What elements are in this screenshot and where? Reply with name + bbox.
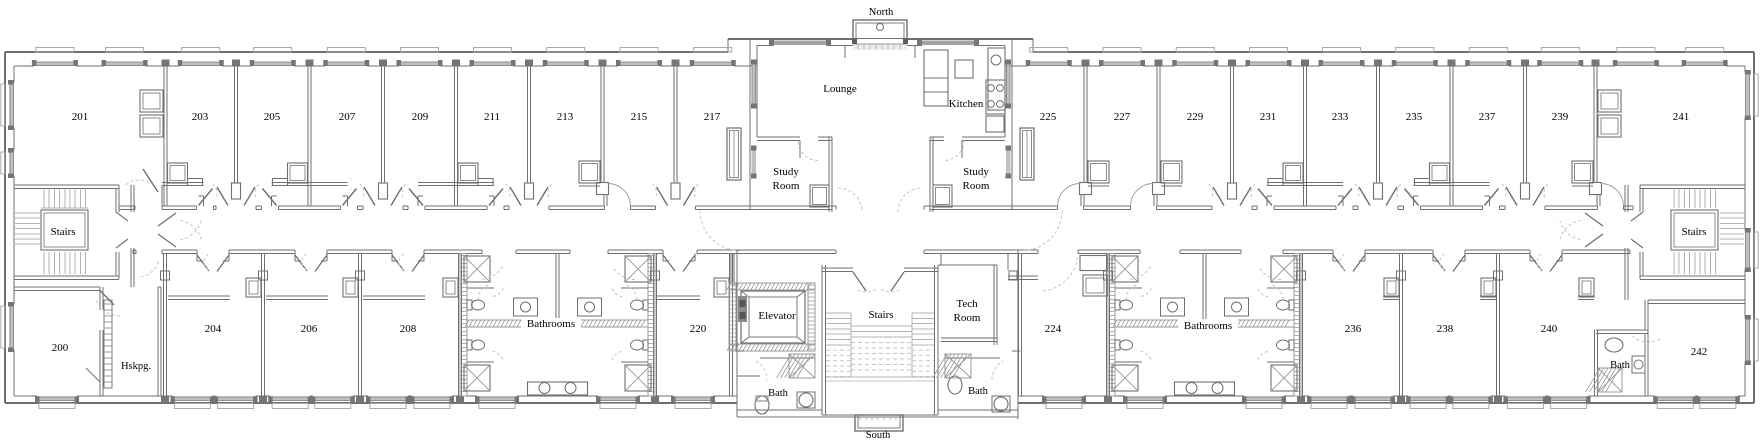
svg-text:240: 240: [1541, 323, 1558, 335]
svg-text:Bath: Bath: [968, 386, 989, 397]
svg-text:213: 213: [557, 111, 574, 123]
svg-text:Bathrooms: Bathrooms: [527, 318, 575, 330]
svg-text:Stairs: Stairs: [868, 309, 893, 321]
svg-text:Study: Study: [963, 166, 989, 178]
svg-text:Bath: Bath: [1610, 360, 1631, 371]
svg-text:200: 200: [52, 342, 69, 354]
svg-text:231: 231: [1260, 111, 1277, 123]
svg-text:209: 209: [412, 111, 429, 123]
svg-text:220: 220: [690, 323, 707, 335]
svg-text:229: 229: [1187, 111, 1204, 123]
svg-text:Study: Study: [773, 166, 799, 178]
svg-text:239: 239: [1552, 111, 1569, 123]
svg-text:211: 211: [484, 111, 500, 123]
svg-text:Room: Room: [773, 180, 800, 192]
svg-text:236: 236: [1345, 323, 1362, 335]
svg-text:Room: Room: [954, 312, 981, 324]
svg-text:225: 225: [1040, 111, 1057, 123]
svg-text:Stairs: Stairs: [1681, 226, 1706, 238]
svg-text:204: 204: [205, 323, 222, 335]
svg-text:206: 206: [301, 323, 318, 335]
svg-text:Elevator: Elevator: [758, 310, 796, 322]
svg-text:208: 208: [400, 323, 417, 335]
svg-text:233: 233: [1332, 111, 1349, 123]
svg-text:224: 224: [1045, 323, 1062, 335]
svg-text:Tech: Tech: [956, 298, 978, 310]
svg-text:217: 217: [704, 111, 721, 123]
svg-text:242: 242: [1691, 346, 1708, 358]
svg-text:North: North: [869, 7, 894, 18]
svg-text:227: 227: [1114, 111, 1131, 123]
svg-text:Lounge: Lounge: [823, 83, 857, 95]
svg-text:South: South: [866, 430, 891, 440]
svg-text:215: 215: [631, 111, 648, 123]
svg-text:235: 235: [1406, 111, 1423, 123]
svg-text:Stairs: Stairs: [50, 226, 75, 238]
svg-text:237: 237: [1479, 111, 1496, 123]
svg-text:241: 241: [1673, 111, 1690, 123]
svg-text:Room: Room: [963, 180, 990, 192]
svg-text:Kitchen: Kitchen: [949, 98, 984, 110]
svg-text:Bath: Bath: [768, 388, 789, 399]
svg-text:Hskpg.: Hskpg.: [121, 361, 151, 372]
svg-text:201: 201: [72, 111, 89, 123]
svg-text:205: 205: [264, 111, 281, 123]
svg-text:Bathrooms: Bathrooms: [1184, 320, 1232, 332]
svg-text:207: 207: [339, 111, 356, 123]
svg-text:203: 203: [192, 111, 209, 123]
svg-text:238: 238: [1437, 323, 1454, 335]
